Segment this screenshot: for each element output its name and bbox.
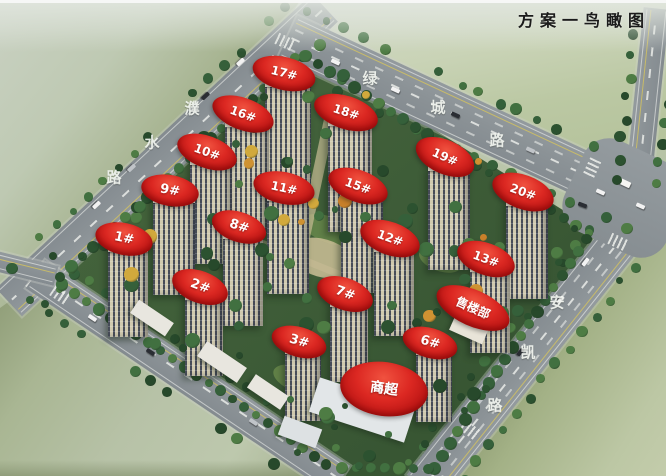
tree xyxy=(366,463,376,473)
plan-title: 方案一鸟瞰图 xyxy=(518,7,650,31)
tree xyxy=(393,462,406,475)
tree xyxy=(302,293,312,303)
tree xyxy=(551,124,562,135)
tree xyxy=(231,433,243,445)
tree xyxy=(434,67,443,76)
tree xyxy=(179,344,187,352)
road-name-char: 路 xyxy=(487,395,502,416)
tree xyxy=(45,309,53,317)
tree xyxy=(621,92,628,99)
tree xyxy=(205,379,213,387)
tree xyxy=(263,282,272,291)
tree xyxy=(386,107,396,117)
tree xyxy=(313,59,323,69)
label-text: 10# xyxy=(192,142,221,163)
label-text: 19# xyxy=(430,146,460,168)
tree xyxy=(35,233,43,241)
tree xyxy=(631,263,641,273)
tree xyxy=(555,259,562,266)
tree xyxy=(516,331,526,341)
tree xyxy=(260,93,268,101)
tree xyxy=(457,393,465,401)
label-text: 6# xyxy=(419,334,442,353)
label-text: 7# xyxy=(333,284,356,304)
tree xyxy=(659,118,666,128)
tree xyxy=(380,44,390,54)
tree xyxy=(185,333,200,348)
tree xyxy=(593,313,602,322)
tree xyxy=(358,32,369,43)
tree xyxy=(559,213,569,223)
tree xyxy=(287,396,294,403)
tree xyxy=(188,89,196,97)
tree xyxy=(252,411,260,419)
tree xyxy=(53,220,61,228)
label-text: 12# xyxy=(375,228,404,249)
tree xyxy=(303,7,312,16)
road-name-char: 凯 xyxy=(520,342,535,363)
tree xyxy=(228,395,236,403)
tree xyxy=(244,158,255,169)
tree xyxy=(201,247,214,260)
tree xyxy=(461,407,468,414)
label-text: 商超 xyxy=(369,380,399,398)
label-text: 13# xyxy=(471,249,500,270)
road-name-char: 路 xyxy=(106,167,121,188)
tree xyxy=(565,258,576,269)
tree xyxy=(491,365,504,378)
tree xyxy=(299,50,311,62)
road-name-char: 城 xyxy=(430,97,445,118)
tree xyxy=(621,223,632,234)
residential-tower xyxy=(108,247,148,337)
tree xyxy=(317,321,330,334)
tree xyxy=(215,423,226,434)
tree xyxy=(557,270,568,281)
tree xyxy=(526,394,536,404)
tree xyxy=(499,354,510,365)
aerial-rendering: 方案一鸟瞰图 濮水路绿城路安凯路17#16#18#10#19#9#11#15#2… xyxy=(0,0,666,476)
tree xyxy=(232,140,240,148)
tree xyxy=(467,387,481,401)
tree xyxy=(480,234,487,241)
road-name-char: 水 xyxy=(144,132,159,153)
tree xyxy=(339,231,352,244)
tree xyxy=(321,459,332,470)
tree xyxy=(263,418,273,428)
tree xyxy=(236,352,243,359)
tree xyxy=(657,139,666,151)
tree xyxy=(381,320,395,334)
tree xyxy=(65,260,78,273)
tree xyxy=(387,301,397,311)
road-name-char: 绿 xyxy=(362,68,377,89)
tree xyxy=(150,338,162,350)
label-text: 15# xyxy=(343,176,372,197)
road-name-char: 濮 xyxy=(184,98,199,119)
tree xyxy=(499,426,507,434)
tree xyxy=(203,73,213,83)
label-text: 17# xyxy=(269,64,298,83)
road-name-char: 安 xyxy=(549,292,564,313)
tree xyxy=(332,206,339,213)
tree xyxy=(323,17,331,25)
tree xyxy=(551,247,563,259)
tree xyxy=(483,439,494,450)
tree xyxy=(433,379,447,393)
tree xyxy=(565,197,575,207)
tree xyxy=(444,437,457,450)
tree xyxy=(615,155,626,166)
tree xyxy=(536,374,545,383)
tree xyxy=(302,91,315,104)
tree xyxy=(410,122,421,133)
image-top-border xyxy=(0,0,666,3)
tree xyxy=(320,128,331,139)
tree xyxy=(280,2,290,12)
tree xyxy=(479,356,490,367)
label-text: 20# xyxy=(508,182,537,203)
tree xyxy=(626,51,634,59)
tree xyxy=(84,192,93,201)
tree xyxy=(475,158,482,165)
tree xyxy=(373,98,384,109)
label-text: 16# xyxy=(228,104,257,125)
tree xyxy=(512,409,522,419)
tree xyxy=(174,163,185,174)
tree xyxy=(332,444,340,452)
tree xyxy=(264,16,274,26)
tree xyxy=(298,219,304,225)
label-text: 11# xyxy=(270,179,299,197)
tree xyxy=(268,458,280,470)
label-text: 售楼部 xyxy=(454,295,492,321)
tree xyxy=(130,366,141,377)
tree xyxy=(652,179,661,188)
residential-tower xyxy=(506,201,547,299)
tree xyxy=(120,212,131,223)
tree xyxy=(85,276,94,285)
tree xyxy=(423,464,434,475)
label-text: 3# xyxy=(288,333,311,352)
tree xyxy=(124,267,139,282)
tree xyxy=(485,169,493,177)
tree xyxy=(284,258,295,269)
tree xyxy=(606,297,615,306)
label-text: 8# xyxy=(227,217,250,236)
tree xyxy=(314,39,325,50)
tree xyxy=(324,66,335,77)
tree xyxy=(421,440,429,448)
label-text: 2# xyxy=(188,277,211,297)
tree xyxy=(245,145,258,158)
tree xyxy=(467,373,475,381)
tree xyxy=(98,177,107,186)
tree xyxy=(78,253,84,259)
tree xyxy=(566,346,574,354)
tree xyxy=(239,402,249,412)
tree xyxy=(459,413,472,426)
tree xyxy=(314,211,324,221)
tree xyxy=(473,87,482,96)
tree xyxy=(69,288,80,299)
tree xyxy=(614,131,626,143)
tree xyxy=(573,246,584,257)
tree xyxy=(436,450,449,463)
tree xyxy=(294,449,301,456)
tree xyxy=(6,263,18,275)
tree xyxy=(77,330,85,338)
tree xyxy=(266,253,274,261)
tree xyxy=(309,451,320,462)
tree xyxy=(380,463,390,473)
tree xyxy=(49,252,57,260)
tree xyxy=(162,387,172,397)
label-text: 1# xyxy=(113,230,135,247)
tree xyxy=(264,206,279,221)
tree xyxy=(496,99,507,110)
tree xyxy=(510,103,521,114)
tree xyxy=(170,334,180,344)
tree xyxy=(303,165,311,173)
tree xyxy=(467,401,480,414)
tree xyxy=(337,69,350,82)
tree xyxy=(419,242,434,257)
label-text: 18# xyxy=(331,102,360,122)
tree xyxy=(55,272,65,282)
tree xyxy=(285,157,293,165)
tree xyxy=(60,319,69,328)
road-name-char: 路 xyxy=(489,130,504,151)
label-text: 9# xyxy=(159,182,181,199)
tree xyxy=(355,462,363,470)
tree xyxy=(82,297,91,306)
tree xyxy=(385,431,391,437)
tree xyxy=(26,296,34,304)
tree xyxy=(331,424,338,431)
tree xyxy=(470,455,482,467)
tree xyxy=(589,141,600,152)
tree xyxy=(531,306,544,319)
